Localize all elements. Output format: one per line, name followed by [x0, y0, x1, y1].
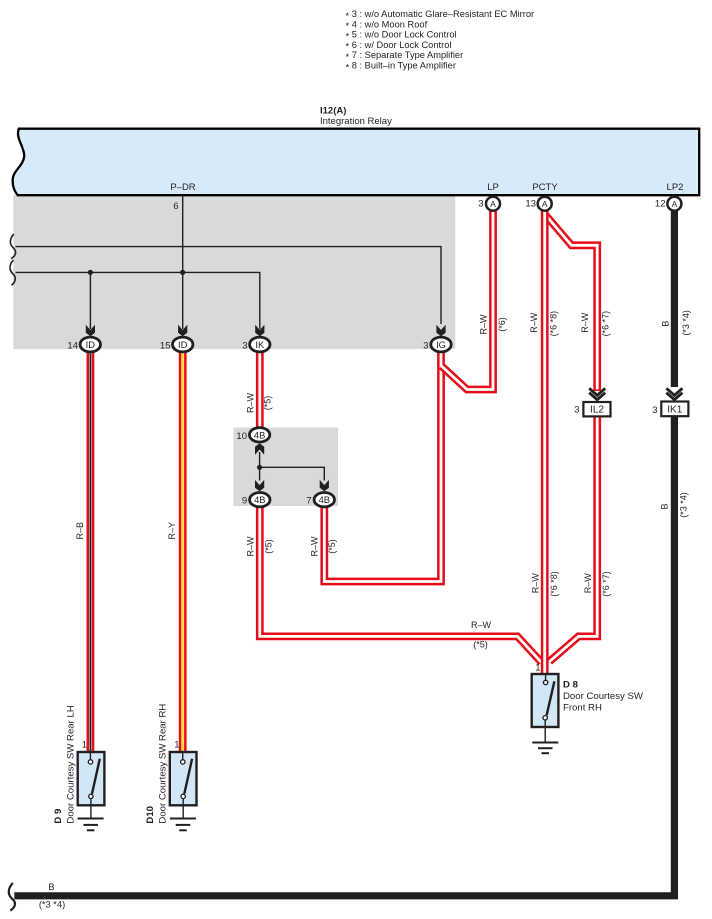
svg-text:15: 15	[160, 341, 171, 352]
svg-text:(*6 *8): (*6 *8)	[549, 571, 559, 597]
svg-text:4B: 4B	[319, 495, 330, 505]
svg-text:R–W: R–W	[529, 312, 539, 333]
svg-text:LP: LP	[487, 182, 499, 193]
svg-text:R–W: R–W	[310, 536, 320, 557]
svg-text:1: 1	[535, 663, 540, 674]
svg-text:10: 10	[236, 431, 247, 442]
svg-text:R–W: R–W	[246, 392, 256, 413]
svg-text:PCTY: PCTY	[532, 182, 558, 193]
svg-text:R–W: R–W	[246, 536, 256, 557]
svg-text:D 8: D 8	[563, 680, 579, 691]
svg-text:IK1: IK1	[667, 405, 682, 416]
svg-text:B: B	[660, 503, 670, 509]
svg-text:A: A	[490, 199, 496, 209]
svg-text:7: 7	[306, 496, 311, 507]
svg-text:P–DR: P–DR	[170, 182, 195, 193]
svg-text:(*5): (*5)	[263, 396, 273, 411]
svg-text:D 9: D 9	[53, 809, 64, 824]
svg-text:Door Courtesy SW Rear RH: Door Courtesy SW Rear RH	[158, 704, 169, 824]
svg-text:(*6 *7): (*6 *7)	[601, 311, 611, 337]
svg-text:12: 12	[655, 199, 666, 210]
svg-text:3: 3	[574, 405, 579, 416]
svg-text:(*5): (*5)	[473, 640, 488, 650]
svg-text:ID: ID	[86, 340, 96, 350]
svg-text:A: A	[542, 199, 548, 209]
svg-text:R–W: R–W	[531, 573, 541, 594]
svg-text:(*6): (*6)	[497, 317, 507, 332]
svg-text:R–W: R–W	[471, 620, 492, 630]
svg-text:I12(A): I12(A)	[320, 106, 346, 117]
svg-text:9: 9	[242, 496, 247, 507]
svg-text:IL2: IL2	[590, 405, 604, 416]
svg-text:LP2: LP2	[667, 182, 684, 193]
svg-text:(*5): (*5)	[327, 539, 337, 554]
svg-text:4B: 4B	[254, 430, 265, 440]
svg-text:(*3 *4): (*3 *4)	[679, 492, 689, 518]
svg-text:A: A	[672, 199, 678, 209]
svg-text:R–W: R–W	[479, 314, 489, 335]
svg-text:14: 14	[67, 341, 78, 352]
svg-text:R–W: R–W	[583, 573, 593, 594]
svg-text:6: 6	[173, 201, 178, 212]
svg-text:Integration Relay: Integration Relay	[320, 116, 392, 127]
svg-text:R–Y: R–Y	[167, 522, 177, 540]
svg-text:4B: 4B	[254, 495, 265, 505]
svg-text:Front RH: Front RH	[563, 703, 602, 714]
svg-text:IK: IK	[255, 340, 265, 350]
svg-text:1: 1	[174, 740, 179, 751]
svg-text:(*3 *4): (*3 *4)	[39, 900, 65, 910]
svg-text:3: 3	[478, 199, 483, 210]
svg-text:13: 13	[525, 199, 536, 210]
svg-text:R–W: R–W	[580, 312, 590, 333]
svg-text:Door Courtesy SW Rear LH: Door Courtesy SW Rear LH	[66, 705, 77, 823]
svg-text:IG: IG	[436, 340, 446, 350]
svg-text:* 8 : Built–in Type Amplifier: * 8 : Built–in Type Amplifier	[346, 61, 456, 73]
svg-text:D10: D10	[145, 806, 156, 824]
svg-text:1: 1	[82, 740, 87, 751]
svg-text:(*6 *7): (*6 *7)	[601, 571, 611, 597]
svg-text:R–B: R–B	[75, 522, 85, 540]
svg-text:(*6 *8): (*6 *8)	[549, 311, 559, 337]
svg-text:3: 3	[423, 341, 428, 352]
svg-text:3: 3	[242, 341, 247, 352]
svg-text:B: B	[48, 882, 54, 892]
svg-text:3: 3	[652, 405, 657, 416]
svg-text:B: B	[660, 321, 670, 327]
svg-text:ID: ID	[178, 340, 188, 350]
svg-text:(*3 *4): (*3 *4)	[681, 310, 691, 336]
svg-text:(*5): (*5)	[264, 539, 274, 554]
svg-text:Door Courtesy SW: Door Courtesy SW	[563, 691, 644, 702]
